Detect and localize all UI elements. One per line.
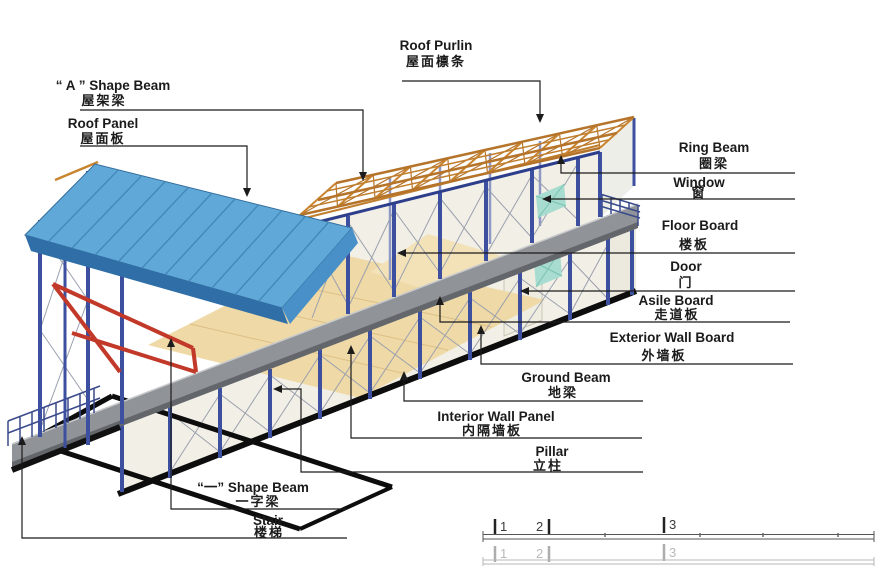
ruler2-mark-1: 1 <box>500 546 507 561</box>
label-door-en: Door <box>670 259 702 274</box>
label-asile-board-en: Asile Board <box>638 293 713 308</box>
diagram-page: “ A ” Shape Beam 屋架梁 Roof Panel 屋面板 Roof… <box>0 0 877 568</box>
label-exterior-wall-board-zh: 外墙板 <box>640 348 686 363</box>
leader-roof-purlin <box>402 81 540 116</box>
label-one-shape-beam-en: “一” Shape Beam <box>197 480 309 495</box>
one-shape-beam <box>53 284 196 372</box>
label-roof-panel-en: Roof Panel <box>68 116 139 131</box>
label-floor-board-en: Floor Board <box>662 218 739 233</box>
label-a-shape-beam-en: “ A ” Shape Beam <box>56 78 171 93</box>
label-pillar-zh: 立柱 <box>533 458 563 473</box>
label-exterior-wall-board-en: Exterior Wall Board <box>610 330 735 345</box>
label-ring-beam-zh: 圈梁 <box>699 156 729 171</box>
roof-panel <box>25 164 358 324</box>
ruler2-mark-2: 2 <box>536 546 543 561</box>
label-stair-zh: 楼梯 <box>254 525 284 540</box>
label-interior-wall-panel-en: Interior Wall Panel <box>437 409 554 424</box>
prefab-house-diagram: “ A ” Shape Beam 屋架梁 Roof Panel 屋面板 Roof… <box>0 0 877 568</box>
label-ground-beam-en: Ground Beam <box>521 370 610 385</box>
label-ground-beam-zh: 地梁 <box>548 385 578 400</box>
label-pillar-en: Pillar <box>535 444 569 459</box>
label-window-zh: 窗 <box>691 185 706 200</box>
ruler-mark-2: 2 <box>536 519 543 534</box>
label-ring-beam-en: Ring Beam <box>679 140 750 155</box>
scale-ruler: 1 2 3 1 2 3 <box>483 517 874 566</box>
label-one-shape-beam-zh: 一字梁 <box>235 494 280 509</box>
ruler-mark-1: 1 <box>500 519 507 534</box>
label-door-zh: 门 <box>678 275 693 290</box>
scale-ruler-row2: 1 2 3 <box>483 544 874 566</box>
label-roof-panel-zh: 屋面板 <box>80 131 125 146</box>
ruler2-mark-3: 3 <box>669 545 676 560</box>
label-roof-purlin-en: Roof Purlin <box>400 38 473 53</box>
label-floor-board-zh: 楼板 <box>679 237 709 252</box>
ruler-mark-3: 3 <box>669 517 676 532</box>
label-a-shape-beam-zh: 屋架梁 <box>81 93 126 108</box>
label-asile-board-zh: 走道板 <box>654 307 699 322</box>
label-interior-wall-panel-zh: 内隔墙板 <box>462 423 522 438</box>
label-roof-purlin-zh: 屋面檩条 <box>406 54 466 69</box>
